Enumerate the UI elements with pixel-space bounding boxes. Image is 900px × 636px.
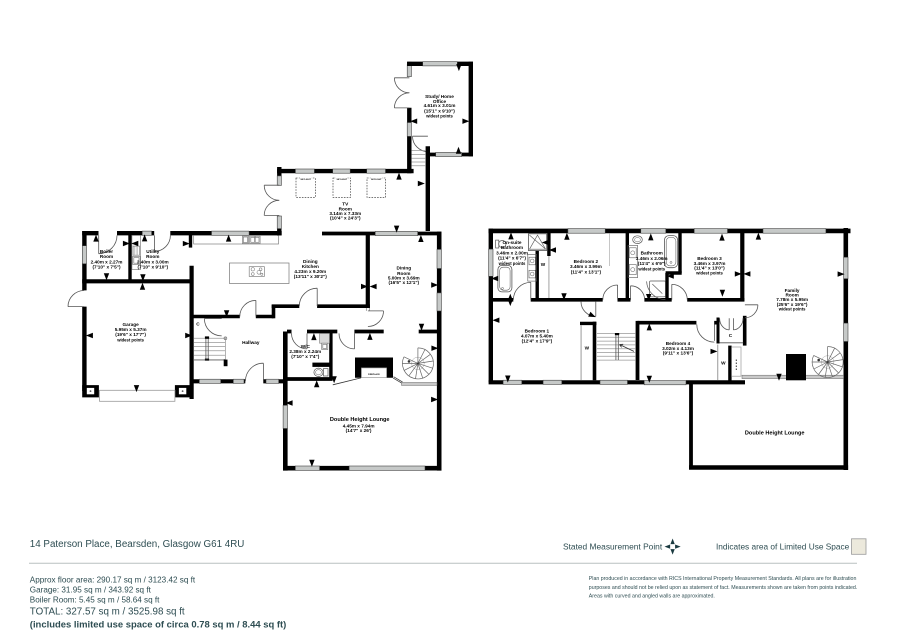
svg-text:Approx floor area: 290.17 sq m: Approx floor area: 290.17 sq m / 3123.42… [30, 576, 196, 585]
svg-text:widest points: widest points [425, 114, 453, 119]
svg-text:(16'5" x 12'1"): (16'5" x 12'1") [388, 280, 419, 285]
svg-text:W: W [585, 346, 590, 351]
svg-text:Boiler Room: 5.45 sq m / 58.64: Boiler Room: 5.45 sq m / 58.64 sq ft [30, 596, 160, 605]
svg-text:(7'10" x 9'10"): (7'10" x 9'10") [137, 265, 168, 270]
svg-text:Areas with curved and angled w: Areas with curved and angled walls are a… [589, 593, 715, 599]
svg-text:C: C [196, 322, 200, 327]
svg-text:Double Height Lounge: Double Height Lounge [330, 417, 390, 423]
svg-text:Plan produced in accordance wi: Plan produced in accordance with RICS In… [589, 576, 857, 582]
svg-text:Indicates area of Limited Use: Indicates area of Limited Use Space [716, 542, 850, 552]
svg-text:(10'4" x 24'3"): (10'4" x 24'3") [330, 216, 361, 221]
svg-text:(19'6" x 17'7"): (19'6" x 17'7") [115, 332, 146, 337]
svg-text:(14'7" x 26'): (14'7" x 26') [346, 428, 372, 433]
svg-text:widest points: widest points [778, 307, 806, 312]
svg-text:(7'10" x 7'5"): (7'10" x 7'5") [92, 265, 120, 270]
svg-text:C: C [729, 333, 733, 338]
svg-text:(11'4" x 6'7"): (11'4" x 6'7") [498, 256, 526, 261]
svg-text:Stated Measurement Point: Stated Measurement Point [563, 542, 663, 552]
svg-text:widest points: widest points [498, 261, 526, 266]
svg-text:14 Paterson Place, Bearsden, G: 14 Paterson Place, Bearsden, Glasgow G61… [30, 539, 245, 550]
svg-text:Hallway: Hallway [242, 340, 260, 345]
svg-text:W: W [721, 361, 726, 366]
svg-text:(13'11" x 30'2"): (13'11" x 30'2") [294, 274, 327, 279]
svg-text:widest points: widest points [695, 270, 723, 275]
svg-text:(includes limited use space of: (includes limited use space of circa 0.7… [30, 619, 286, 630]
svg-text:Double Height Lounge: Double Height Lounge [745, 431, 805, 437]
svg-text:purposes and should not be rel: purposes and should not be relied upon a… [589, 585, 858, 591]
svg-text:widest points: widest points [116, 338, 144, 343]
svg-text:FIREPLACE: FIREPLACE [368, 373, 380, 376]
svg-text:SKYLIGHT: SKYLIGHT [371, 179, 382, 181]
svg-text:(7'10" x 7'4"): (7'10" x 7'4") [291, 354, 319, 359]
svg-text:Garage: 31.95 sq m / 343.92 sq: Garage: 31.95 sq m / 343.92 sq ft [30, 586, 152, 595]
svg-text:(11'4" x 13'1"): (11'4" x 13'1") [571, 269, 602, 274]
svg-text:TOTAL: 327.57 sq m / 3525.98 s: TOTAL: 327.57 sq m / 3525.98 sq ft [30, 606, 185, 617]
svg-text:4.61m x 3.01m: 4.61m x 3.01m [424, 103, 456, 108]
svg-text:(9'11" x 13'6"): (9'11" x 13'6") [663, 351, 694, 356]
svg-text:widest points: widest points [637, 266, 665, 271]
svg-text:SKYLIGHT: SKYLIGHT [337, 179, 348, 181]
svg-text:(12'4" x 17'9"): (12'4" x 17'9") [522, 339, 553, 344]
svg-text:SKYLIGHT: SKYLIGHT [300, 179, 311, 181]
svg-text:W: W [541, 262, 546, 267]
